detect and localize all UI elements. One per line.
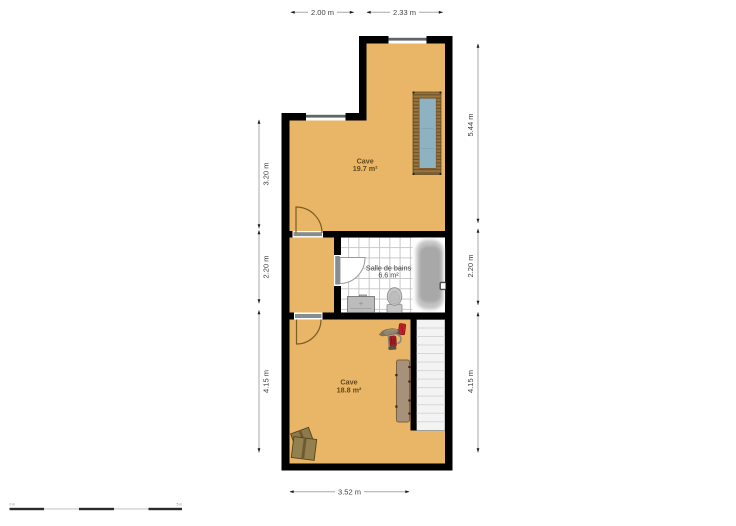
svg-text:4.15 m: 4.15 m: [262, 370, 271, 393]
svg-text:2.20 m: 2.20 m: [262, 256, 271, 279]
svg-text:2.00 m: 2.00 m: [311, 8, 334, 17]
svg-text:4.15 m: 4.15 m: [466, 370, 475, 393]
svg-text:2.20 m: 2.20 m: [466, 255, 475, 278]
svg-text:5 m: 5 m: [177, 503, 183, 507]
svg-text:6.6 m²: 6.6 m²: [378, 271, 399, 280]
svg-text:19.7 m²: 19.7 m²: [353, 164, 378, 173]
svg-text:5.44 m: 5.44 m: [466, 114, 475, 137]
svg-text:0 m: 0 m: [10, 503, 16, 507]
svg-text:2.33 m: 2.33 m: [393, 8, 416, 17]
svg-text:3.52 m: 3.52 m: [338, 487, 361, 496]
svg-text:18.8 m²: 18.8 m²: [337, 385, 362, 394]
svg-text:3.20 m: 3.20 m: [262, 163, 271, 186]
